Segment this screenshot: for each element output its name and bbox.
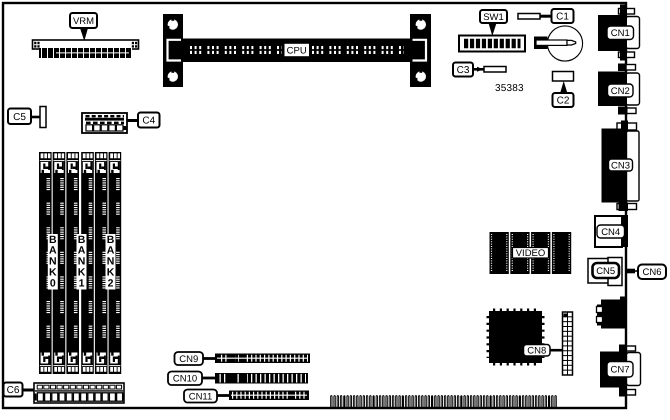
svg-text:CN10: CN10 [173, 374, 197, 385]
svg-text:2: 2 [108, 277, 114, 289]
svg-text:C1: C1 [556, 12, 569, 23]
svg-text:C4: C4 [142, 116, 155, 127]
svg-text:C5: C5 [13, 112, 26, 123]
svg-text:CN4: CN4 [601, 227, 620, 238]
svg-text:CN9: CN9 [179, 354, 198, 365]
svg-text:0: 0 [50, 277, 56, 289]
svg-text:SW1: SW1 [483, 12, 504, 23]
svg-text:35383: 35383 [495, 83, 524, 94]
svg-text:CN3: CN3 [611, 160, 630, 171]
svg-text:CN5: CN5 [596, 266, 615, 277]
svg-text:1: 1 [79, 277, 85, 289]
svg-text:VRM: VRM [73, 16, 94, 27]
svg-text:CN8: CN8 [527, 346, 546, 357]
svg-text:CN2: CN2 [611, 86, 630, 97]
svg-text:C6: C6 [7, 385, 20, 396]
svg-text:CN6: CN6 [642, 267, 661, 278]
svg-text:VIDEO: VIDEO [516, 248, 546, 259]
svg-text:CN11: CN11 [189, 391, 213, 402]
svg-text:C3: C3 [457, 65, 470, 76]
svg-text:CN7: CN7 [610, 365, 629, 376]
svg-text:C2: C2 [557, 96, 570, 107]
svg-text:CPU: CPU [287, 46, 307, 57]
svg-text:CN1: CN1 [611, 28, 630, 39]
